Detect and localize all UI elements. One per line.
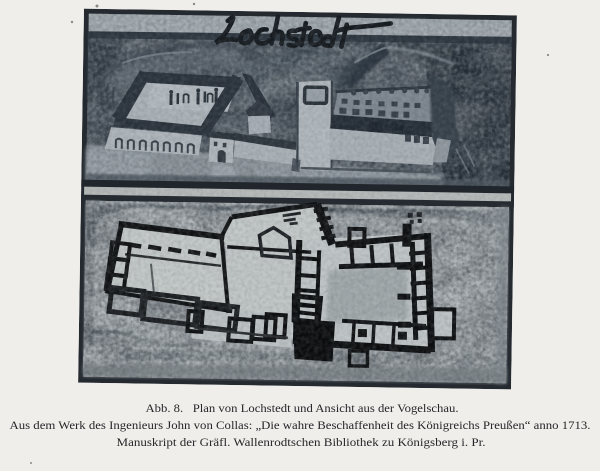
- svg-text:Aus dem Werk des Ingenieurs Jo: Aus dem Werk des Ingenieurs John von Col…: [10, 420, 591, 432]
- svg-text:Manuskript der Gräfl. Wallenro: Manuskript der Gräfl. Wallenrodtschen Bi…: [117, 437, 486, 449]
- svg-text:Abb. 8. Plan von Lochstedt u: Abb. 8. Plan von Lochstedt und Ansicht a…: [146, 403, 459, 415]
